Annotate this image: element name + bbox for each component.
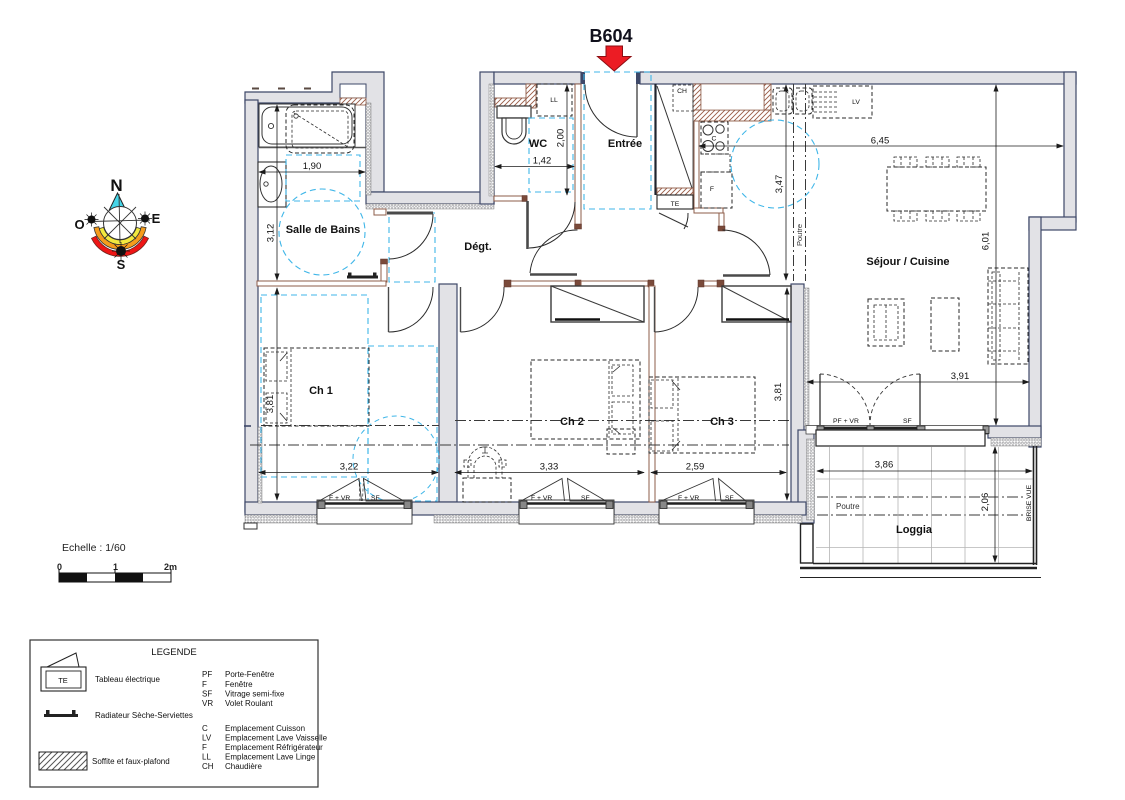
svg-text:3,12: 3,12 — [266, 224, 277, 243]
svg-text:B604: B604 — [589, 26, 632, 46]
svg-text:3,81: 3,81 — [265, 395, 276, 414]
svg-text:CH: CH — [677, 88, 687, 95]
svg-text:Emplacement Cuisson: Emplacement Cuisson — [225, 724, 305, 733]
svg-text:WC: WC — [529, 138, 547, 150]
svg-text:Soffite et faux-plafond: Soffite et faux-plafond — [92, 757, 170, 766]
svg-text:3,47: 3,47 — [774, 175, 785, 194]
svg-text:SF: SF — [202, 690, 212, 699]
svg-text:VR: VR — [202, 699, 213, 708]
svg-text:6,01: 6,01 — [981, 232, 992, 251]
svg-text:Vitrage semi-fixe: Vitrage semi-fixe — [225, 690, 285, 699]
svg-text:SF: SF — [371, 495, 380, 502]
svg-text:E: E — [152, 211, 161, 226]
svg-text:F + VR: F + VR — [678, 495, 699, 502]
svg-text:PF: PF — [202, 670, 212, 679]
svg-text:Ch 3: Ch 3 — [710, 416, 734, 428]
svg-text:Poutre: Poutre — [795, 224, 804, 246]
svg-text:F + VR: F + VR — [531, 495, 552, 502]
svg-text:0: 0 — [57, 562, 62, 572]
svg-text:Dégt.: Dégt. — [464, 241, 492, 253]
svg-text:N: N — [110, 176, 122, 195]
svg-text:Echelle : 1/60: Echelle : 1/60 — [62, 542, 126, 554]
svg-text:SF: SF — [725, 495, 734, 502]
svg-text:Chaudière: Chaudière — [225, 762, 262, 771]
svg-text:Fenêtre: Fenêtre — [225, 680, 253, 689]
svg-text:LV: LV — [202, 734, 212, 743]
svg-text:SF: SF — [903, 418, 912, 425]
svg-text:3,33: 3,33 — [540, 462, 559, 473]
svg-text:3,86: 3,86 — [875, 460, 894, 471]
svg-text:PF + VR: PF + VR — [833, 418, 859, 425]
svg-text:Emplacement Lave Linge: Emplacement Lave Linge — [225, 753, 316, 762]
svg-text:F: F — [710, 186, 714, 193]
svg-text:SF: SF — [581, 495, 590, 502]
svg-text:Emplacement Lave Vaisselle: Emplacement Lave Vaisselle — [225, 734, 328, 743]
svg-text:S: S — [117, 257, 126, 272]
svg-text:Ch 1: Ch 1 — [309, 385, 333, 397]
svg-text:F: F — [202, 743, 207, 752]
svg-text:TE: TE — [58, 676, 68, 685]
svg-text:TE: TE — [671, 201, 680, 208]
svg-text:Volet Roulant: Volet Roulant — [225, 699, 273, 708]
svg-text:2,06: 2,06 — [980, 493, 991, 512]
svg-text:LL: LL — [202, 753, 211, 762]
svg-text:CH: CH — [202, 762, 214, 771]
svg-text:C: C — [202, 724, 208, 733]
svg-text:Radiateur Sèche-Serviettes: Radiateur Sèche-Serviettes — [95, 711, 193, 720]
svg-text:2,00: 2,00 — [556, 129, 567, 148]
svg-text:LL: LL — [550, 97, 558, 104]
svg-text:O: O — [74, 217, 84, 232]
svg-text:Salle de Bains: Salle de Bains — [286, 224, 361, 236]
svg-text:Porte-Fenêtre: Porte-Fenêtre — [225, 670, 275, 679]
svg-text:F + VR: F + VR — [329, 495, 350, 502]
svg-text:3,81: 3,81 — [773, 383, 784, 402]
svg-text:1,90: 1,90 — [303, 161, 322, 172]
svg-text:Entrée: Entrée — [608, 138, 642, 150]
svg-text:1: 1 — [113, 562, 118, 572]
svg-text:3,91: 3,91 — [951, 371, 970, 382]
svg-text:6,45: 6,45 — [871, 136, 890, 147]
svg-text:C: C — [712, 136, 717, 143]
svg-text:1,42: 1,42 — [533, 156, 552, 167]
svg-text:LV: LV — [852, 99, 860, 106]
svg-text:Tableau électrique: Tableau électrique — [95, 675, 160, 684]
svg-text:2,59: 2,59 — [686, 462, 705, 473]
svg-text:3,22: 3,22 — [340, 462, 359, 473]
svg-text:Séjour / Cuisine: Séjour / Cuisine — [866, 256, 949, 268]
svg-text:LEGENDE: LEGENDE — [151, 647, 196, 658]
svg-text:F: F — [202, 680, 207, 689]
svg-text:Poutre: Poutre — [836, 502, 860, 511]
svg-text:BRISE VUE: BRISE VUE — [1026, 484, 1033, 521]
svg-text:Emplacement Réfrigérateur: Emplacement Réfrigérateur — [225, 743, 323, 752]
svg-text:Ch 2: Ch 2 — [560, 416, 584, 428]
svg-text:Loggia: Loggia — [896, 524, 933, 536]
